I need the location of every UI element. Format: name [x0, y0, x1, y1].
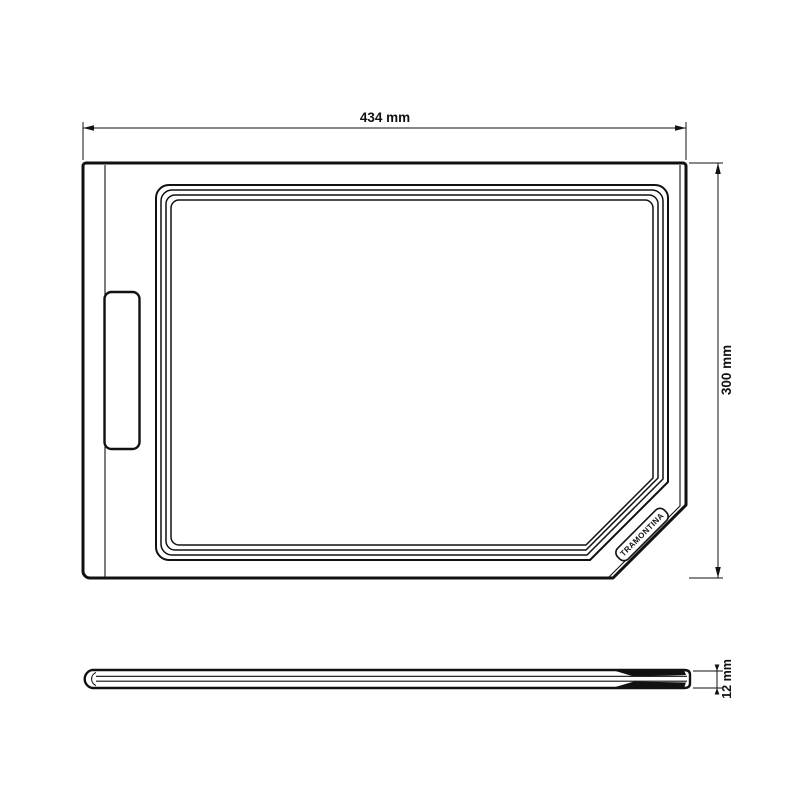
thickness-arrow-top [715, 665, 720, 672]
height-arrow-bottom [715, 567, 721, 578]
height-dimension: 300 mm [689, 163, 734, 578]
brand-badge-label: TRAMONTINA [619, 511, 666, 558]
groove-ring-1 [156, 185, 668, 560]
side-view [85, 670, 690, 688]
width-arrow-right [675, 125, 686, 131]
width-arrow-left [83, 125, 94, 131]
groove-ring-4 [171, 200, 653, 545]
profile-outline [85, 670, 690, 688]
cutting-board-technical-drawing: TRAMONTINA 434 mm 300 mm [0, 0, 800, 800]
profile-left-cap-contour [92, 673, 96, 686]
top-view: TRAMONTINA [83, 163, 686, 578]
technical-drawing-page: TRAMONTINA 434 mm 300 mm [0, 0, 800, 800]
edge-bevel-line [608, 165, 680, 578]
profile-rim-top-shade [612, 670, 686, 677]
width-dimension: 434 mm [83, 110, 686, 160]
thickness-dimension: 12 mm [693, 659, 734, 699]
groove-ring-2 [161, 190, 663, 555]
height-arrow-top [715, 163, 721, 174]
width-dimension-label: 434 mm [360, 110, 410, 125]
handle-notch [105, 292, 140, 449]
board-outline [83, 163, 686, 578]
thickness-arrow-bottom [715, 688, 720, 695]
groove-ring-3 [166, 195, 658, 550]
height-dimension-label: 300 mm [719, 345, 734, 395]
profile-rim-bottom-shade [612, 682, 686, 689]
thickness-dimension-label: 12 mm [720, 659, 734, 699]
